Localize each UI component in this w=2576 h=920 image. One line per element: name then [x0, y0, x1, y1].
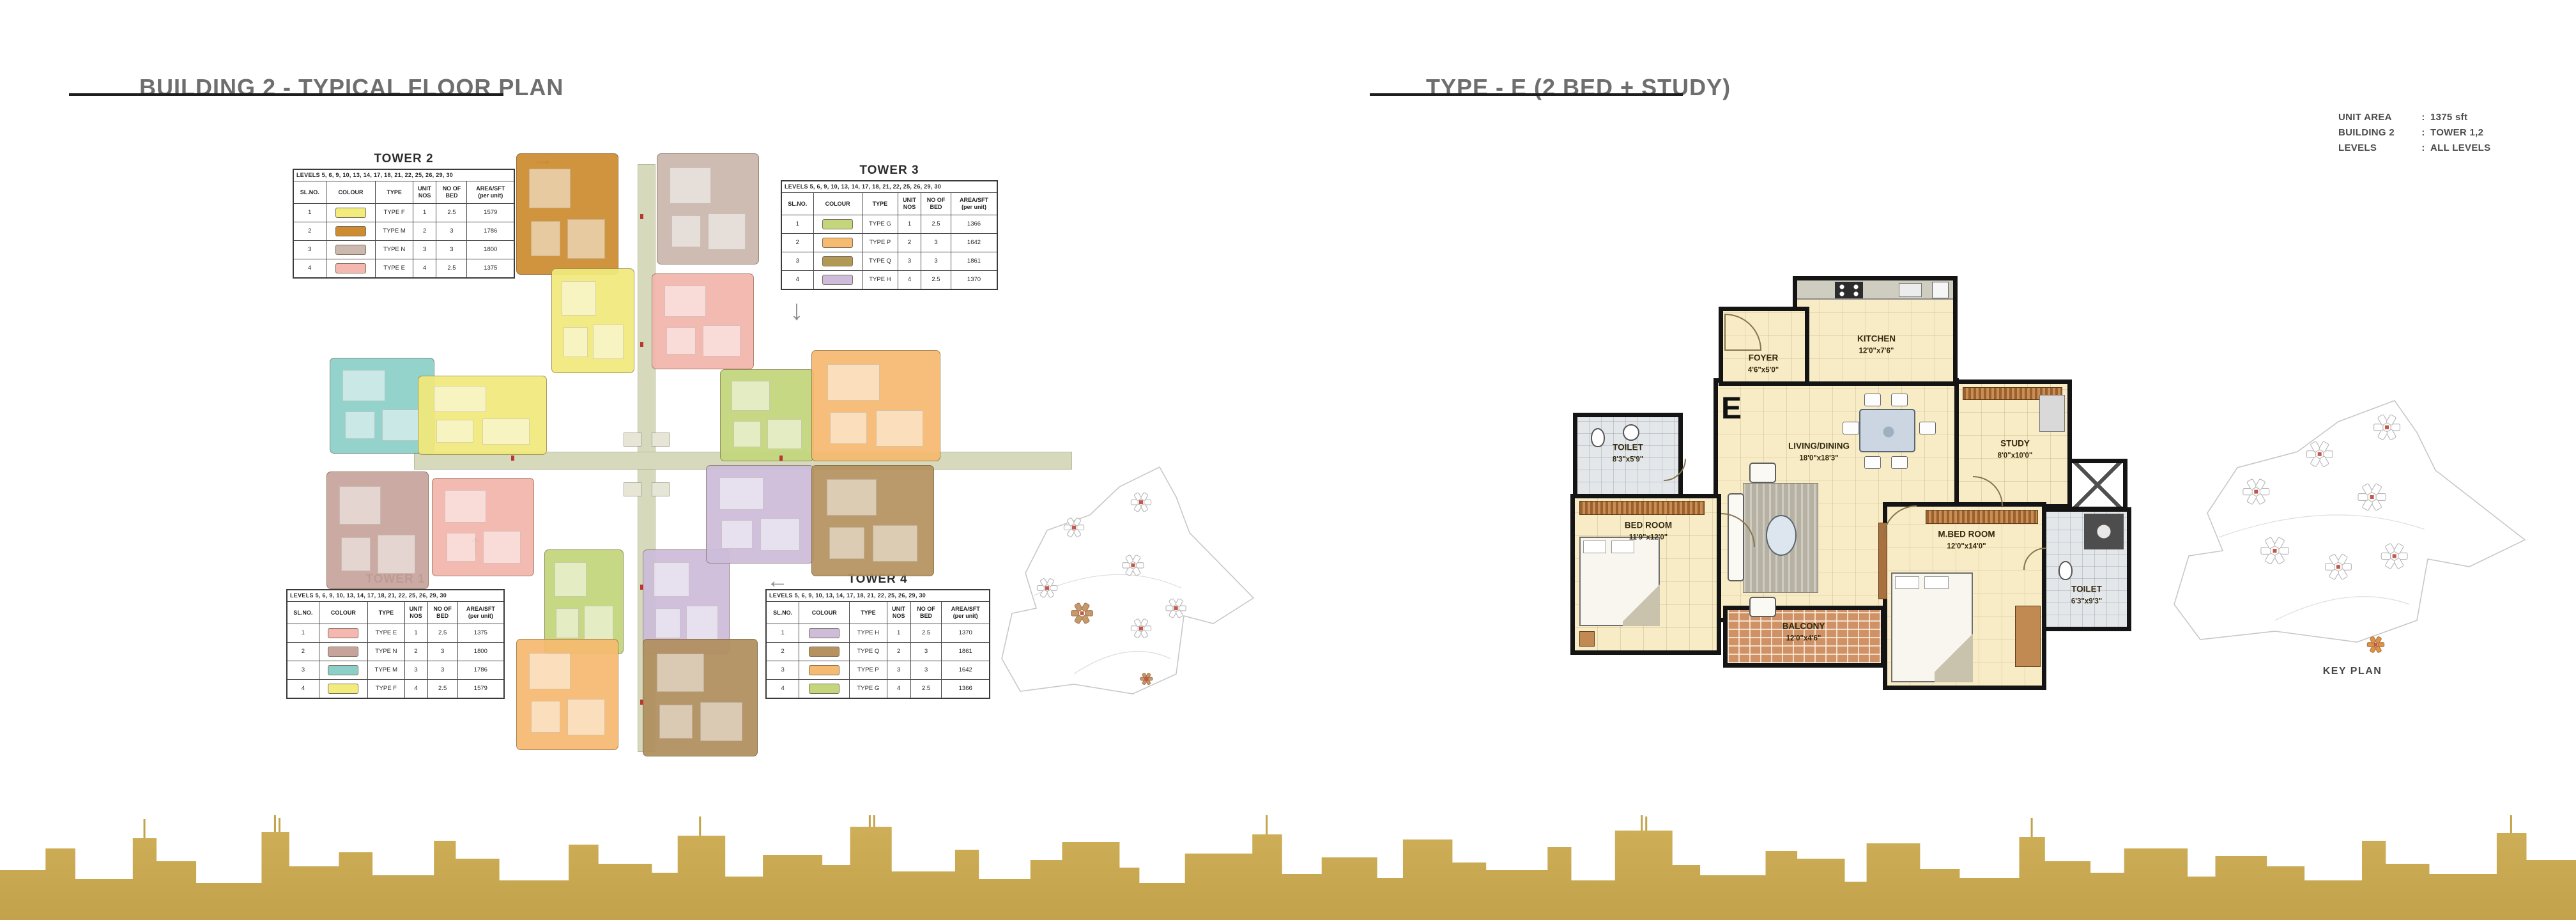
- type-e-floor-plan: LIVING/DINING18'0"x18'3"KITCHEN12'0"x7'6…: [1554, 248, 2151, 717]
- antenna-spire: [699, 816, 701, 836]
- unit-cluster: [551, 268, 634, 373]
- unit-room: [593, 325, 624, 359]
- building-cluster: [1123, 555, 1144, 576]
- wc-icon: [1591, 428, 1605, 447]
- building-cluster: [2326, 554, 2352, 579]
- unit-info-colon: :: [2416, 125, 2430, 141]
- antenna-spire: [1645, 816, 1647, 831]
- unit-room: [829, 527, 864, 559]
- bed-pillow: [1895, 576, 1919, 589]
- room-shaft: [2067, 459, 2127, 511]
- unit-cluster: [811, 465, 934, 576]
- lift-core: [652, 433, 670, 447]
- room-dims: 8'0"x10'0": [1998, 451, 2033, 463]
- unit-room: [483, 531, 521, 563]
- unit-room: [655, 608, 681, 638]
- unit-room: [654, 562, 689, 597]
- unit-room: [670, 167, 711, 204]
- site-boundary: [2174, 401, 2525, 642]
- building-cluster: [2358, 484, 2386, 511]
- room-name: KITCHEN: [1857, 333, 1896, 346]
- title-underline-left: [69, 93, 503, 96]
- unit-room: [567, 699, 605, 735]
- dining-chair: [1864, 394, 1881, 406]
- unit-room: [686, 606, 718, 640]
- unit-cluster: [326, 471, 429, 589]
- unit-room: [382, 410, 420, 441]
- unit-room: [482, 418, 530, 445]
- fridge-icon: [1932, 282, 1949, 298]
- unit-type-letter: E: [1721, 391, 1742, 426]
- unit-info-row: UNIT AREA:1375 sft: [2338, 110, 2490, 125]
- unit-info-colon: :: [2416, 110, 2430, 125]
- dining-chair: [1864, 456, 1881, 469]
- building-cluster: [2261, 537, 2288, 565]
- room-dims: 4'6"x5'0": [1748, 365, 1779, 377]
- building-cluster: [2381, 543, 2407, 569]
- room-dims: 12'0"x7'6": [1857, 346, 1896, 358]
- building-cluster: [1131, 493, 1151, 512]
- room-name: BED ROOM: [1625, 519, 1672, 533]
- unit-room: [341, 537, 371, 571]
- bedside-table: [1579, 631, 1595, 647]
- room-label-foyer: FOYER4'6"x5'0": [1748, 352, 1779, 377]
- unit-room: [345, 411, 375, 439]
- unit-cluster: [516, 639, 618, 750]
- room-label-toilet-right: TOILET6'3"x9'3": [2071, 583, 2102, 608]
- unit-info-value: 1375 sft: [2430, 110, 2467, 125]
- site-boundary: [1002, 467, 1253, 694]
- page-title-right: TYPE - E (2 BED + STUDY): [1426, 74, 1731, 101]
- unit-room: [378, 535, 415, 573]
- unit-room: [719, 477, 763, 510]
- room-label-bed-room: BED ROOM11'9"x12'0": [1625, 519, 1672, 544]
- unit-room: [827, 479, 877, 516]
- unit-cluster: [657, 153, 759, 264]
- unit-cluster: [811, 350, 940, 461]
- unit-room: [760, 518, 800, 551]
- room-label-m-bed-room: M.BED ROOM12'0"x14'0": [1938, 528, 1995, 553]
- unit-cluster: [643, 639, 758, 756]
- unit-room: [339, 486, 381, 525]
- lift-core: [624, 433, 641, 447]
- unit-room: [562, 281, 595, 316]
- wardrobe-bedroom: [1579, 501, 1705, 515]
- building-cluster: [2374, 415, 2400, 440]
- dining-chair: [1843, 422, 1859, 434]
- unit-room: [531, 221, 560, 256]
- highlighted-building-cluster: [1071, 602, 1093, 624]
- wc-icon: [2058, 561, 2073, 580]
- sofa-chair: [1749, 463, 1776, 483]
- antenna-spire: [1641, 815, 1643, 831]
- bed-pillow: [1924, 576, 1949, 589]
- unit-room: [708, 213, 746, 250]
- lift-core: [652, 482, 670, 496]
- room-name: M.BED ROOM: [1938, 528, 1995, 542]
- unit-room: [827, 364, 880, 401]
- building-cluster: [2306, 441, 2333, 467]
- unit-room: [529, 653, 571, 689]
- lift-core: [624, 482, 641, 496]
- antenna-spire: [1266, 815, 1268, 834]
- brochure-page: { "pages": { "left": { "title": "BUILDIN…: [0, 0, 2576, 920]
- door-marker: [640, 214, 643, 219]
- room-label-balcony: BALCONY12'0"x4'6": [1782, 620, 1825, 645]
- unit-info-label: UNIT AREA: [2338, 110, 2416, 125]
- kitchen-counter: [1797, 280, 1953, 300]
- unit-room: [876, 410, 923, 447]
- unit-room: [721, 520, 753, 549]
- door-marker: [640, 700, 643, 705]
- unit-info-value: ALL LEVELS: [2430, 141, 2490, 156]
- door-marker: [640, 342, 643, 347]
- unit-cluster: [432, 478, 534, 576]
- unit-cluster: [516, 153, 618, 275]
- study-desk: [2039, 395, 2065, 432]
- dresser: [2015, 606, 2041, 667]
- unit-info-row: LEVELS:ALL LEVELS: [2338, 141, 2490, 156]
- door-marker: [640, 585, 643, 590]
- unit-room: [703, 325, 740, 356]
- door-marker: [511, 456, 514, 461]
- room-label-living-dining: LIVING/DINING18'0"x18'3": [1788, 440, 1850, 465]
- unit-room: [434, 386, 486, 412]
- unit-room: [733, 421, 761, 448]
- room-name: STUDY: [1998, 438, 2033, 451]
- room-dims: 8'3"x5'9": [1613, 455, 1643, 466]
- tv-unit: [1878, 523, 1887, 599]
- room-label-toilet-left: TOILET8'3"x5'9": [1613, 441, 1643, 466]
- unit-cluster: [706, 465, 814, 563]
- antenna-spire: [144, 819, 146, 838]
- unit-info-label: LEVELS: [2338, 141, 2416, 156]
- unit-room: [567, 219, 605, 259]
- unit-room: [447, 533, 476, 562]
- room-dims: 6'3"x9'3": [2071, 597, 2102, 608]
- room-name: BALCONY: [1782, 620, 1825, 634]
- room-name: TOILET: [1613, 441, 1643, 455]
- unit-room: [830, 412, 867, 444]
- sink-icon: [1899, 283, 1922, 297]
- unit-room: [563, 327, 588, 357]
- unit-room: [659, 705, 693, 739]
- highlighted-building-cluster: [1140, 673, 1153, 685]
- antenna-spire: [873, 815, 875, 827]
- dining-table: [1859, 409, 1915, 452]
- dining-chair: [1891, 394, 1908, 406]
- room-label-kitchen: KITCHEN12'0"x7'6": [1857, 333, 1896, 358]
- antenna-spire: [279, 818, 280, 832]
- unit-room: [671, 215, 701, 247]
- shower-area: [2084, 514, 2124, 549]
- unit-room: [445, 490, 486, 523]
- building-cluster: [1166, 599, 1186, 618]
- room-name: LIVING/DINING: [1788, 440, 1850, 454]
- wardrobe-mbedroom: [1926, 510, 2038, 524]
- dining-chair: [1919, 422, 1936, 434]
- skyline-silhouette: [0, 827, 2576, 920]
- antenna-spire: [869, 815, 871, 827]
- sofa-chair: [1749, 597, 1776, 617]
- room-dims: 18'0"x18'3": [1788, 454, 1850, 465]
- unit-room: [342, 370, 385, 401]
- unit-cluster: [720, 369, 814, 461]
- sofa-long: [1728, 493, 1744, 581]
- site-road: [2219, 515, 2425, 620]
- room-name: TOILET: [2071, 583, 2102, 597]
- coffee-table: [1766, 515, 1797, 556]
- building-cluster: [1037, 578, 1057, 598]
- unit-room: [436, 420, 473, 443]
- unit-room: [664, 286, 706, 317]
- unit-room: [767, 419, 802, 449]
- unit-room: [556, 608, 579, 638]
- bed-fold: [1935, 625, 1973, 682]
- unit-room: [531, 701, 560, 733]
- city-skyline-graphic: [0, 815, 2576, 920]
- unit-room: [700, 702, 742, 740]
- unit-info-colon: :: [2416, 141, 2430, 156]
- key-plan-label: KEY PLAN: [2323, 666, 2382, 677]
- room-dims: 12'0"x4'6": [1782, 634, 1825, 645]
- key-plan-map: [2163, 390, 2536, 658]
- door-marker: [779, 456, 783, 461]
- highlighted-building-cluster: [2367, 636, 2384, 653]
- bed-fold: [1623, 581, 1660, 626]
- washbasin-icon: [1623, 424, 1639, 441]
- bed-pillow: [1583, 540, 1606, 553]
- antenna-spire: [274, 815, 276, 832]
- dining-chair: [1891, 456, 1908, 469]
- unit-info-label: BUILDING 2: [2338, 125, 2416, 141]
- page-title-left: BUILDING 2 - TYPICAL FLOOR PLAN: [139, 74, 563, 101]
- unit-room: [529, 169, 571, 208]
- site-plan-left: [993, 457, 1262, 709]
- unit-cluster: [652, 273, 754, 369]
- title-underline-right: [1370, 93, 1683, 96]
- building-cluster: [2243, 479, 2269, 504]
- room-label-study: STUDY8'0"x10'0": [1998, 438, 2033, 463]
- antenna-spire: [2031, 818, 2033, 837]
- unit-cluster: [418, 376, 547, 455]
- unit-room: [873, 525, 917, 562]
- unit-info-block: UNIT AREA:1375 sftBUILDING 2:TOWER 1,2LE…: [2338, 110, 2490, 156]
- building-2-typical-floor-plan: [268, 137, 1029, 776]
- unit-info-value: TOWER 1,2: [2430, 125, 2483, 141]
- room-dims: 12'0"x14'0": [1938, 542, 1995, 553]
- antenna-spire: [2510, 815, 2512, 833]
- unit-room: [732, 381, 770, 411]
- unit-room: [657, 654, 703, 692]
- unit-room: [584, 606, 613, 640]
- unit-room: [555, 562, 587, 597]
- stove-icon: [1835, 282, 1863, 298]
- unit-room: [666, 327, 696, 355]
- building-cluster: [1131, 618, 1151, 638]
- unit-info-row: BUILDING 2:TOWER 1,2: [2338, 125, 2490, 141]
- room-dims: 11'9"x12'0": [1625, 533, 1672, 544]
- room-name: FOYER: [1748, 352, 1779, 365]
